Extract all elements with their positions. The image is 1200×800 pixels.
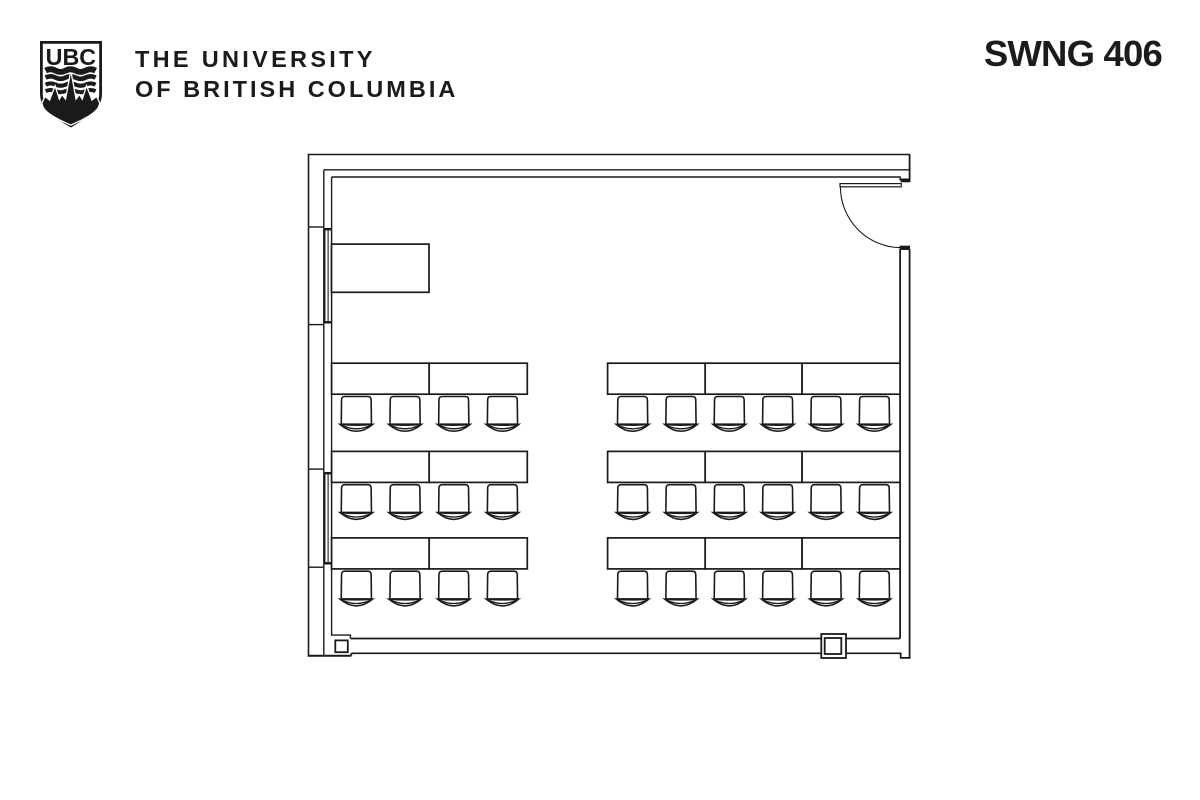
svg-text:UBC: UBC xyxy=(46,44,97,70)
